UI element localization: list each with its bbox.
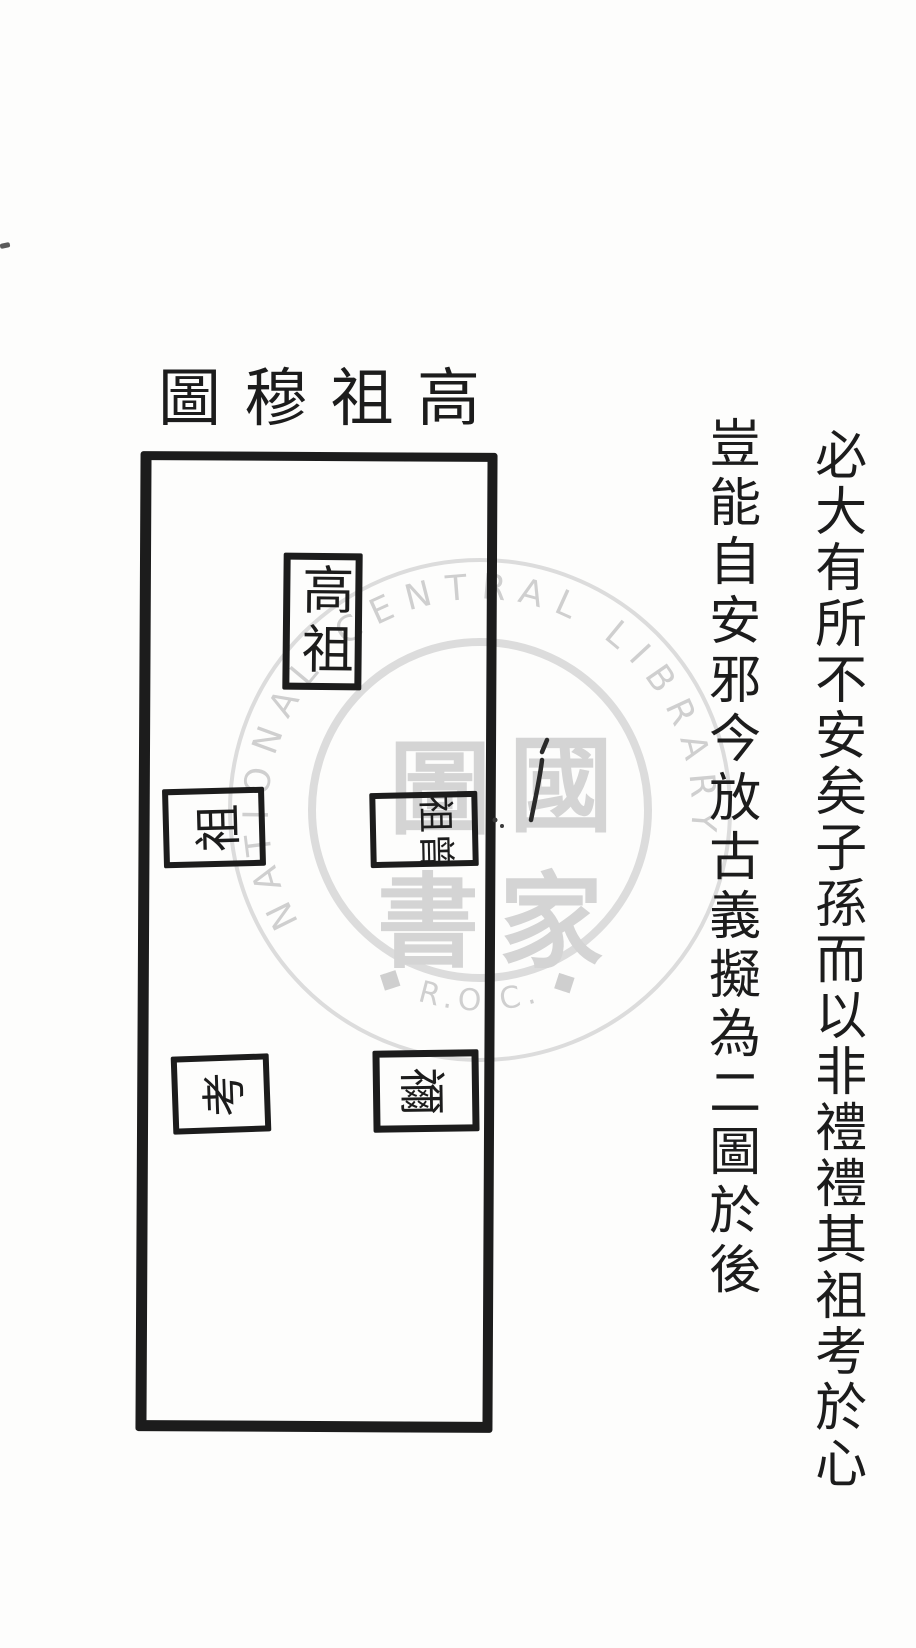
shrine-box-gaozu: 高祖 (282, 553, 362, 691)
shrine-label-kao: 考 (188, 1070, 255, 1117)
edge-ink-speck (0, 242, 10, 249)
scanned-book-page: { "page": { "background": "#fdfdfc", "in… (0, 0, 916, 1648)
title-char-tu: 圖 (158, 367, 221, 430)
shrine-box-kao: 考 (171, 1053, 272, 1134)
stamp-emblem-char-jia: 家 (499, 860, 603, 983)
shrine-box-ni: 禰 (372, 1049, 479, 1132)
stray-ink-mark (485, 730, 565, 830)
shrine-box-zengzu: 曾祖 (369, 791, 479, 868)
shrine-box-zu: 祖 (162, 787, 266, 869)
title-char-zu: 祖 (331, 367, 394, 430)
shrine-label-ni: 禰 (391, 1067, 462, 1116)
shrine-label-zengzu: 曾祖 (392, 792, 457, 867)
commentary-column-right: 必大有所不安矣子孫而以非禮禮其祖考於心 (808, 428, 863, 1528)
shrine-label-gaozu: 高祖 (296, 562, 349, 681)
commentary-column-left: 豈能自安邪今放古義擬為二圖於後 (702, 416, 757, 1336)
shrine-label-zu: 祖 (178, 803, 249, 853)
title-char-mu: 穆 (244, 367, 307, 430)
title-char-gao: 高 (417, 367, 480, 430)
page-title: 圖 穆 祖 高 (158, 356, 480, 440)
